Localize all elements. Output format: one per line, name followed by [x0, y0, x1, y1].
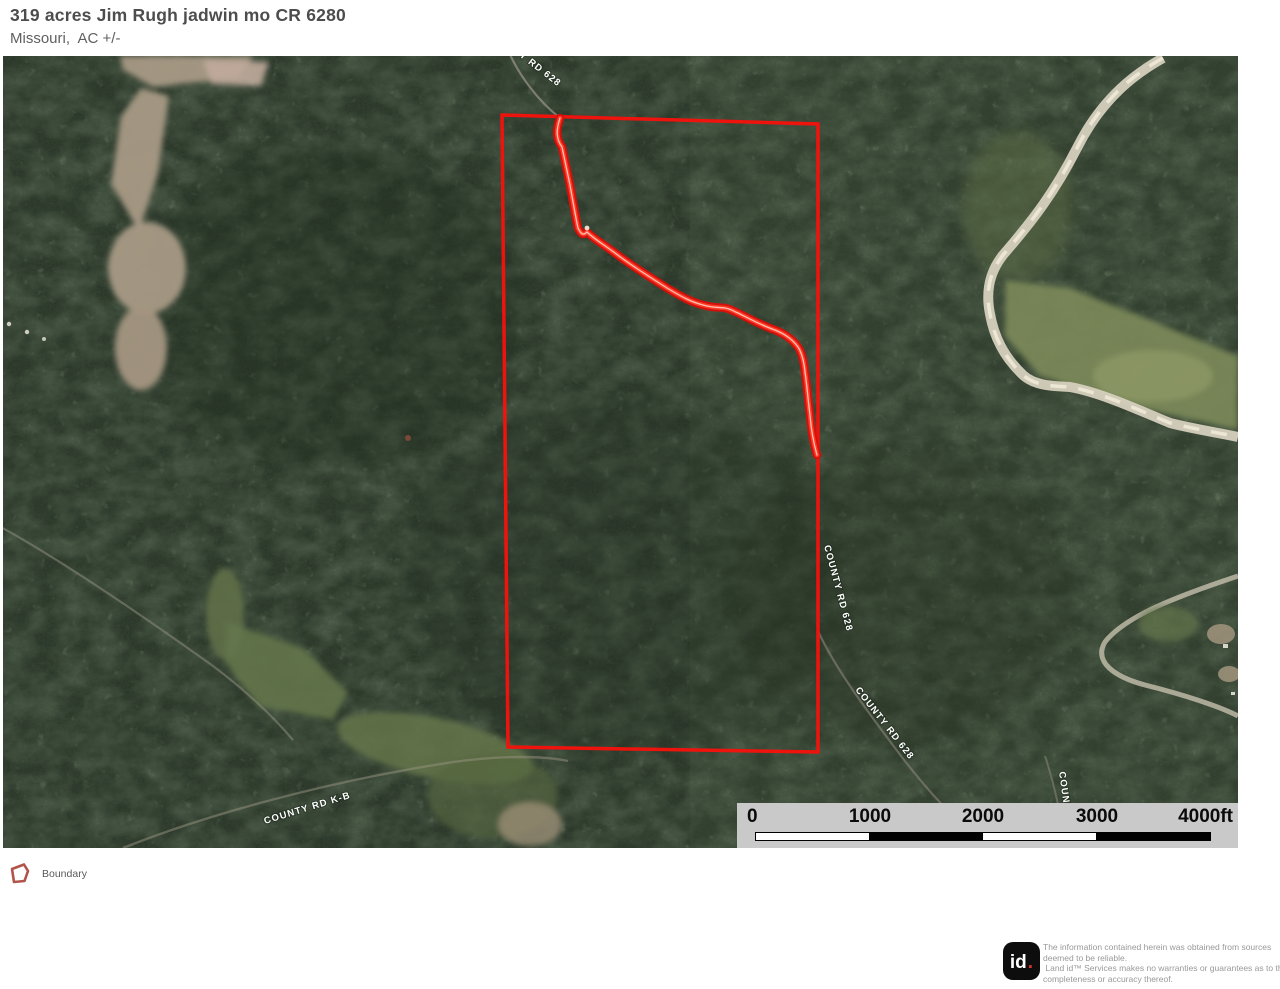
scale-tick-label: 2000	[962, 806, 1004, 828]
scale-bar-segments	[755, 832, 1211, 841]
land-id-logo: id.	[1003, 942, 1040, 980]
scale-tick-label: 1000	[849, 806, 891, 828]
page-title: 319 acres Jim Rugh jadwin mo CR 6280	[10, 5, 346, 26]
scale-tick-label: 0	[747, 806, 758, 828]
aerial-imagery: COUNTY RD 628 COUNTY RD 628 COUNTY RD 62…	[3, 56, 1238, 848]
page: 319 acres Jim Rugh jadwin mo CR 6280 Mis…	[0, 0, 1280, 989]
boundary-polygon-icon	[8, 862, 31, 886]
map-canvas[interactable]: COUNTY RD 628 COUNTY RD 628 COUNTY RD 62…	[3, 56, 1238, 848]
scale-tick-label: 4000ft	[1178, 806, 1233, 828]
scale-bar: 0 1000 2000 3000 4000ft	[737, 803, 1238, 848]
disclaimer-text: The information contained herein was obt…	[1043, 942, 1279, 984]
legend-item-boundary: Boundary	[42, 868, 87, 880]
map-header: 319 acres Jim Rugh jadwin mo CR 6280 Mis…	[10, 5, 346, 47]
scale-tick-label: 3000	[1076, 806, 1118, 828]
legend: Boundary	[8, 862, 87, 886]
page-subtitle: Missouri, AC +/-	[10, 30, 346, 47]
